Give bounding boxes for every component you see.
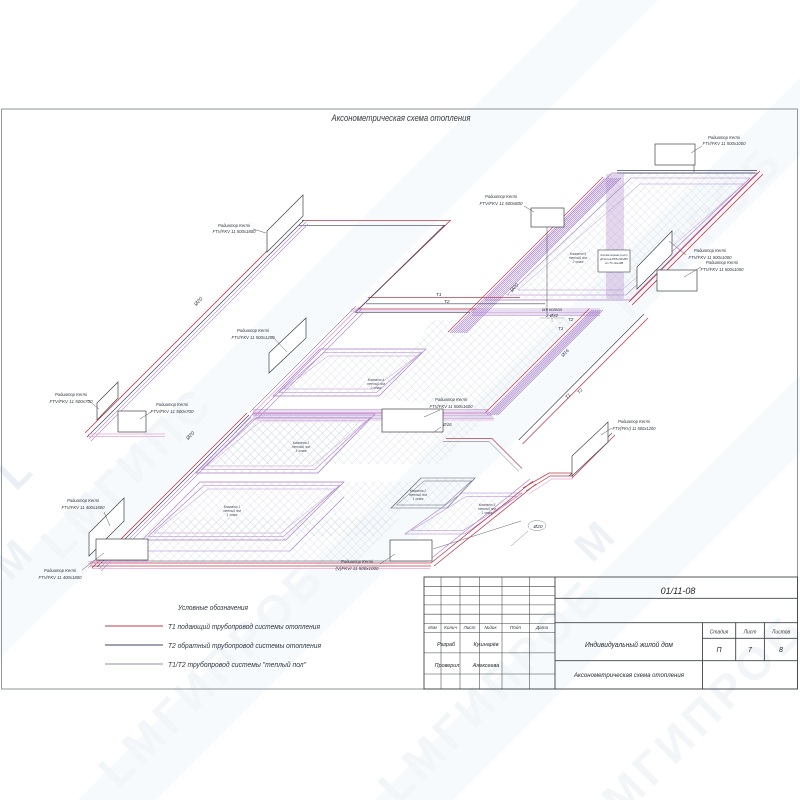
svg-text:Условные обозначения: Условные обозначения xyxy=(177,603,248,612)
svg-text:8: 8 xyxy=(779,647,783,654)
svg-text:(V)FKVI 11 500x1000: (V)FKVI 11 500x1000 xyxy=(336,566,379,572)
svg-text:Ø20: Ø20 xyxy=(532,524,542,530)
svg-text:Колич: Колич xyxy=(444,625,457,630)
svg-text:FTV/FKV 11 400x1800: FTV/FKV 11 400x1800 xyxy=(62,505,105,511)
svg-text:2-Ø32: 2-Ø32 xyxy=(545,313,559,318)
svg-text:Изм: Изм xyxy=(428,625,437,630)
svg-text:Радиатор Kermi: Радиатор Kermi xyxy=(44,568,77,574)
svg-text:Стадия: Стадия xyxy=(710,630,729,636)
svg-text:FTV/FKV 11 500x700: FTV/FKV 11 500x700 xyxy=(50,399,93,405)
svg-text:Индивидуальный жилой дом: Индивидуальный жилой дом xyxy=(585,640,673,649)
svg-text:Радиатор Kermi: Радиатор Kermi xyxy=(485,194,518,200)
svg-text:Листов: Листов xyxy=(771,630,791,636)
svg-text:Подп: Подп xyxy=(510,625,521,630)
svg-text:1 этаж: 1 этаж xyxy=(296,449,308,453)
svg-text:Радиатор Kermi: Радиатор Kermi xyxy=(237,328,270,334)
svg-text:Радиатор Kermi: Радиатор Kermi xyxy=(435,397,468,403)
svg-text:Радиатор Kermi: Радиатор Kermi xyxy=(67,498,100,504)
svg-text:Алексеева: Алексеева xyxy=(472,663,500,669)
svg-text:Дата: Дата xyxy=(535,625,549,630)
svg-text:Т1/Т2 трубопровод системы "теп: Т1/Т2 трубопровод системы "теплый пол" xyxy=(168,661,306,669)
svg-text:Лист: Лист xyxy=(463,625,476,630)
svg-text:Радиатор Kermi: Радиатор Kermi xyxy=(156,402,189,408)
svg-text:Т1: Т1 xyxy=(436,292,442,298)
svg-text:Аксонометрическая схема отопле: Аксонометрическая схема отопления xyxy=(331,113,471,123)
svg-text:FTV/FKV 11 500x700: FTV/FKV 11 500x700 xyxy=(151,409,194,415)
svg-text:FTV/FKV 11 500x1800: FTV/FKV 11 500x1800 xyxy=(213,229,256,235)
svg-text:Коллекторная (щит): Коллекторная (щит) xyxy=(600,253,627,257)
svg-text:01/11-08: 01/11-08 xyxy=(661,586,696,596)
svg-text:Т1: Т1 xyxy=(558,326,564,331)
svg-text:Проверил: Проверил xyxy=(435,663,460,669)
svg-text:Т2 обратный трубопровод систем: Т2 обратный трубопровод системы отоплени… xyxy=(168,642,321,650)
svg-text:№док: №док xyxy=(484,625,497,630)
svg-text:Радиатор Kermi: Радиатор Kermi xyxy=(55,392,88,398)
svg-text:FTV(FKV) 11 500x1200: FTV(FKV) 11 500x1200 xyxy=(613,426,656,432)
svg-text:Лист: Лист xyxy=(743,630,757,636)
svg-text:Радиатор Kermi: Радиатор Kermi xyxy=(694,248,727,254)
svg-text:ДУНА-НU/W5х/30х/ВЗ: ДУНА-НU/W5х/30х/ВЗ xyxy=(599,257,628,261)
svg-text:Радиатор Kermi: Радиатор Kermi xyxy=(618,419,651,425)
svg-text:от ТС №м10В: от ТС №м10В xyxy=(605,261,624,265)
svg-text:1 этаж: 1 этаж xyxy=(227,513,239,517)
svg-text:Разраб: Разраб xyxy=(437,642,456,648)
svg-text:2 этаж: 2 этаж xyxy=(370,386,383,390)
svg-text:Т2: Т2 xyxy=(568,317,574,322)
svg-text:Т2: Т2 xyxy=(444,299,450,305)
svg-text:Ø16: Ø16 xyxy=(442,422,452,427)
svg-text:FTV/FKV 11 500x800: FTV/FKV 11 500x800 xyxy=(480,201,523,207)
svg-text:1 этаж: 1 этаж xyxy=(482,511,494,515)
svg-text:FTV/FKV 11 500x1200: FTV/FKV 11 500x1200 xyxy=(232,335,275,341)
svg-text:FTV/FKV 11 500x1000: FTV/FKV 11 500x1000 xyxy=(703,141,746,147)
svg-text:Радиатор Kermi: Радиатор Kermi xyxy=(341,559,374,565)
svg-text:FTV/FKV 11 400x1800: FTV/FKV 11 400x1800 xyxy=(39,575,82,581)
svg-text:Радиатор Kermi: Радиатор Kermi xyxy=(708,135,741,141)
svg-text:2 этаж: 2 этаж xyxy=(572,260,585,264)
svg-text:от котла: от котла xyxy=(542,307,562,312)
svg-text:1 этаж: 1 этаж xyxy=(413,497,425,501)
svg-text:FTV/FKV 11 500x1600: FTV/FKV 11 500x1600 xyxy=(430,404,473,410)
svg-text:Радиатор Kermi: Радиатор Kermi xyxy=(706,260,739,266)
svg-text:FTV/FKV 11 500x1000: FTV/FKV 11 500x1000 xyxy=(701,267,744,273)
svg-text:Аксонометрическая схема отопле: Аксонометрическая схема отопления xyxy=(573,672,684,679)
svg-text:Кушнарёв: Кушнарёв xyxy=(473,642,498,648)
svg-text:Радиатор Kermi: Радиатор Kermi xyxy=(218,223,251,229)
svg-text:Т1 подающий трубопровод систем: Т1 подающий трубопровод системы отоплени… xyxy=(168,623,320,631)
